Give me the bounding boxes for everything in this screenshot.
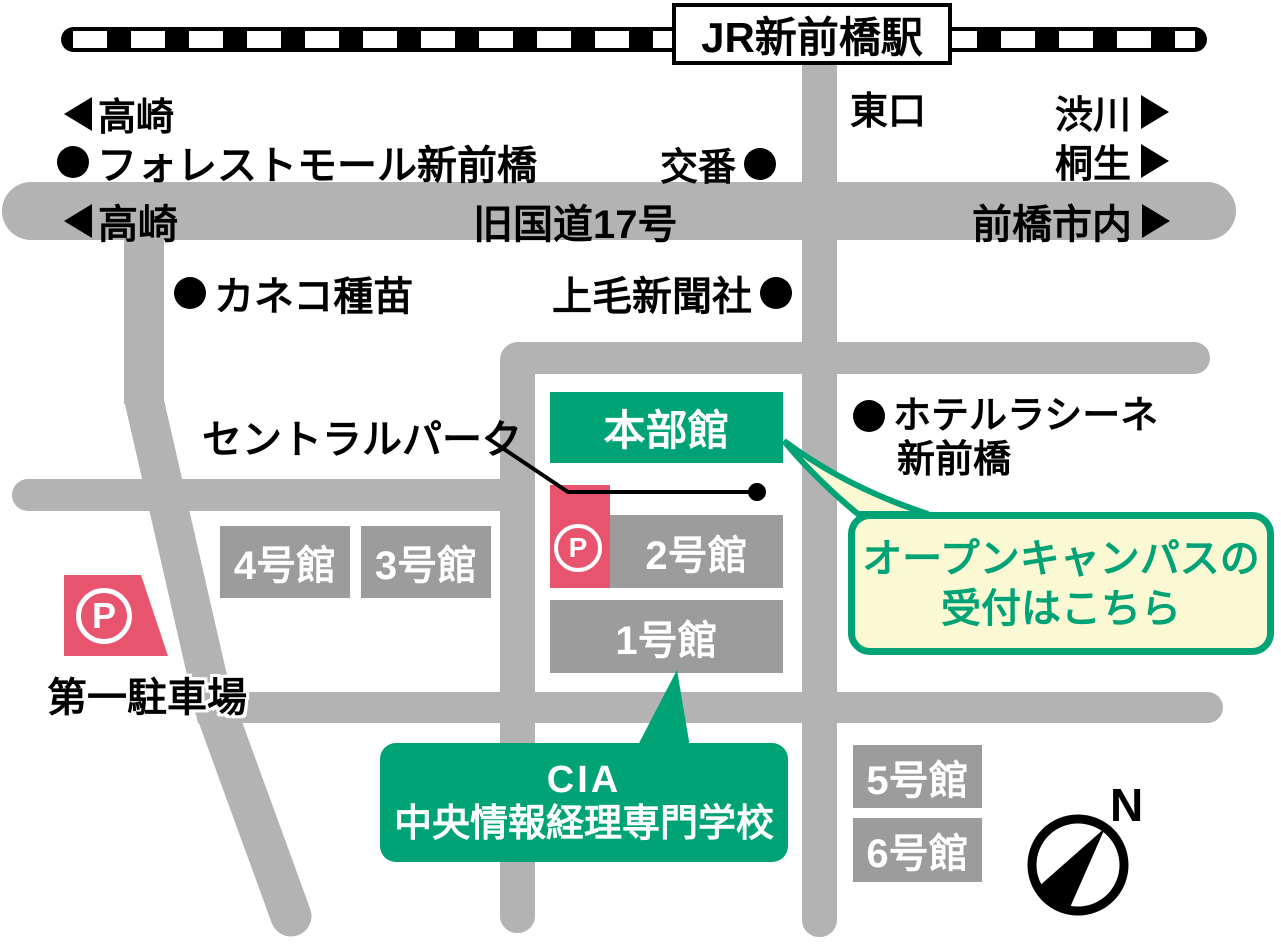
label-route17: 旧国道17号 xyxy=(473,192,678,250)
label-kaneko: カネコ種苗 xyxy=(174,264,413,322)
poi-dot-icon xyxy=(853,400,885,432)
parking-icon: P xyxy=(76,588,132,644)
road-above-honbukan xyxy=(503,342,1210,374)
building-6: 6号館 xyxy=(853,818,982,882)
arrow-left-icon xyxy=(64,204,92,238)
school-name: 中央情報経理専門学校 xyxy=(394,801,774,847)
callout-line2: 受付はこちら xyxy=(941,584,1181,634)
label-maebashi-city: 前橋市内 xyxy=(972,192,1170,250)
label-shibukawa: 渋川 xyxy=(1055,84,1169,139)
railway-line xyxy=(61,27,1207,52)
building-2: 2号館 xyxy=(610,515,783,588)
open-campus-callout: オープンキャンパスの 受付はこちら xyxy=(848,512,1274,655)
school-abbr: CIA xyxy=(547,759,621,801)
road-south-horizontal xyxy=(200,692,1223,723)
building-5: 5号館 xyxy=(853,745,982,808)
station-name: JR新前橋駅 xyxy=(701,4,923,65)
label-takasaki-road: 高崎 xyxy=(64,192,178,250)
building-honbukan: 本部館 xyxy=(550,392,783,463)
access-map: JR新前橋駅 高崎 東口 渋川 桐生 交番 フォレストモール新前橋 高崎 旧国道… xyxy=(0,0,1281,945)
parking-icon: P xyxy=(554,524,602,572)
leader-dot-icon xyxy=(748,483,766,501)
arrow-right-icon xyxy=(1142,204,1170,238)
compass-north-label: N xyxy=(1110,779,1143,831)
label-jomo: 上毛新聞社 xyxy=(552,264,792,322)
compass-circle xyxy=(1032,819,1124,911)
label-east-exit: 東口 xyxy=(850,80,926,135)
school-box: CIA 中央情報経理専門学校 xyxy=(380,743,788,862)
label-forest-mall: フォレストモール新前橋 xyxy=(57,133,537,191)
railway-dashes xyxy=(73,31,1195,48)
label-koban: 交番 xyxy=(660,136,776,191)
label-hotel-line2: 新前橋 xyxy=(897,438,1158,482)
arrow-left-icon xyxy=(64,97,92,131)
callout-line1: オープンキャンパスの xyxy=(862,534,1260,584)
label-daiichi-parking: 第一駐車場 xyxy=(47,665,247,723)
poi-dot-icon xyxy=(174,277,206,309)
building-3: 3号館 xyxy=(361,526,491,598)
label-central-park: セントラルパーク xyxy=(202,407,522,465)
compass-needle-icon xyxy=(1037,828,1105,912)
poi-dot-icon xyxy=(57,146,89,178)
road-left-vertical xyxy=(124,239,164,404)
station-sign: JR新前橋駅 xyxy=(672,3,952,65)
label-hotel: ホテルラシーネ 新前橋 xyxy=(853,394,1158,482)
road-station-vertical xyxy=(802,55,837,937)
label-kiryu: 桐生 xyxy=(1055,133,1169,188)
poi-dot-icon xyxy=(744,148,776,180)
building-4: 4号館 xyxy=(220,526,350,598)
poi-dot-icon xyxy=(760,277,792,309)
road-central-park-south xyxy=(12,479,533,511)
arrow-right-icon xyxy=(1141,144,1169,178)
building-1: 1号館 xyxy=(550,600,783,673)
arrow-right-icon xyxy=(1141,95,1169,129)
